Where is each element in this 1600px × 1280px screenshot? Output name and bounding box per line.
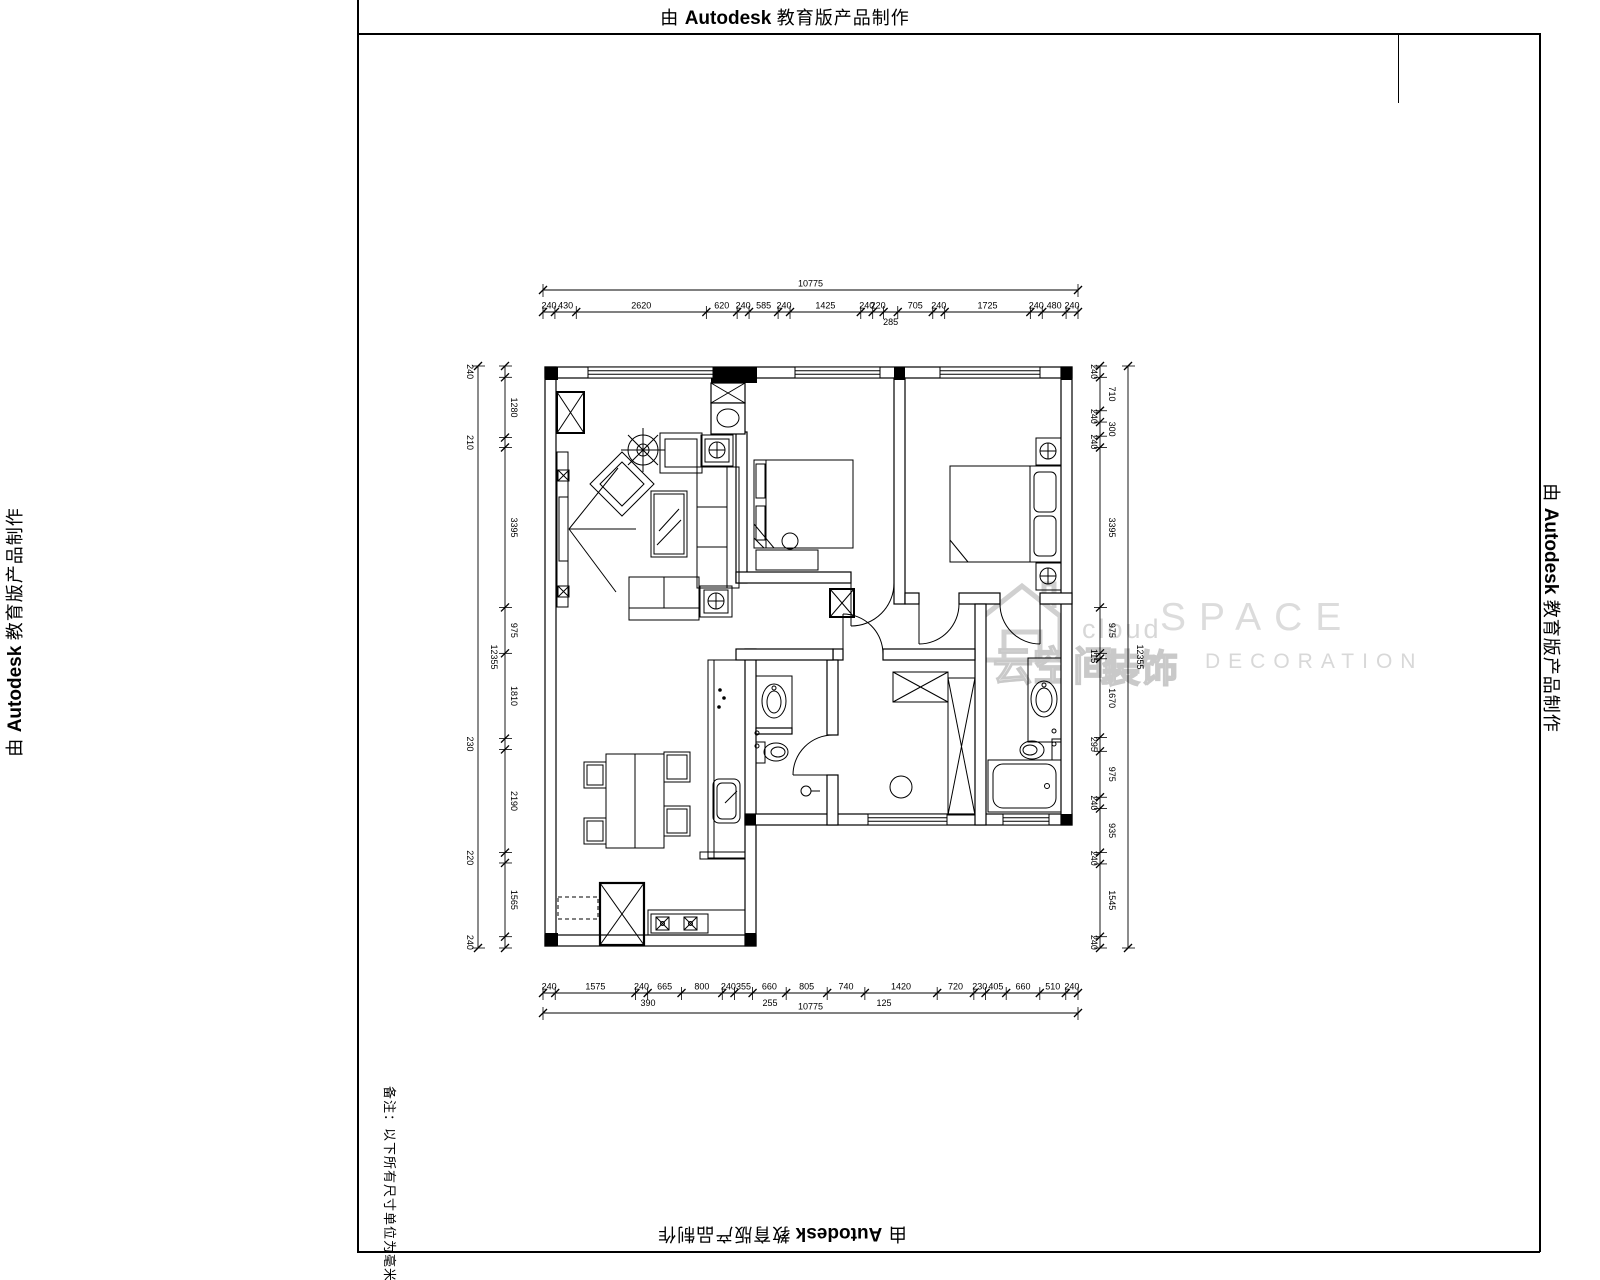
svg-text:220: 220 (465, 850, 475, 865)
svg-text:240: 240 (721, 982, 736, 992)
svg-text:660: 660 (1015, 982, 1030, 992)
svg-text:740: 740 (839, 982, 854, 992)
washbasin-2 (1028, 658, 1061, 742)
coffee-table (651, 491, 687, 557)
svg-text:240: 240 (634, 982, 649, 992)
svg-text:240: 240 (931, 301, 946, 311)
svg-text:240: 240 (736, 301, 751, 311)
svg-text:12355: 12355 (1135, 644, 1145, 669)
tall-wardrobe (948, 678, 975, 815)
svg-text:585: 585 (756, 301, 771, 311)
svg-text:1280: 1280 (509, 397, 519, 417)
svg-text:240: 240 (542, 982, 557, 992)
single-sofa (660, 433, 702, 473)
svg-text:405: 405 (988, 982, 1003, 992)
svg-text:1575: 1575 (585, 982, 605, 992)
svg-text:1425: 1425 (815, 301, 835, 311)
svg-text:12355: 12355 (489, 644, 499, 669)
wardrobe-box (893, 672, 948, 702)
dimension-chain-top: 2404302620620240585240142524022028570524… (539, 279, 1082, 328)
svg-text:1810: 1810 (509, 686, 519, 706)
svg-text:805: 805 (799, 982, 814, 992)
svg-text:975: 975 (1107, 767, 1117, 782)
svg-text:975: 975 (1107, 623, 1117, 638)
dimension-chain-left: 2401280210339597518102302190220156524012… (465, 362, 519, 952)
stool (890, 776, 912, 798)
washbasin-1 (756, 676, 792, 728)
svg-text:1420: 1420 (891, 982, 911, 992)
svg-text:3395: 3395 (509, 517, 519, 537)
svg-text:510: 510 (1045, 982, 1060, 992)
main-sofa (697, 467, 739, 588)
svg-text:480: 480 (1047, 301, 1062, 311)
svg-text:660: 660 (762, 982, 777, 992)
svg-text:1565: 1565 (509, 890, 519, 910)
svg-text:1670: 1670 (1107, 688, 1117, 708)
svg-text:800: 800 (694, 982, 709, 992)
svg-text:125: 125 (876, 998, 891, 1008)
svg-text:620: 620 (714, 301, 729, 311)
svg-text:3395: 3395 (1107, 517, 1117, 537)
svg-text:710: 710 (1107, 387, 1117, 402)
nightstand-top (1036, 438, 1061, 465)
loveseat (629, 577, 699, 620)
nightstand-bottom (1036, 563, 1061, 590)
svg-text:975: 975 (509, 623, 519, 638)
svg-text:240: 240 (777, 301, 792, 311)
appliance-dashed (558, 897, 598, 919)
dimension-chain-bottom: 2401575240665800240355660805740142072023… (539, 982, 1082, 1021)
kitchen-counter (708, 660, 745, 858)
svg-text:1725: 1725 (977, 301, 997, 311)
svg-text:720: 720 (948, 982, 963, 992)
hall-cabinet (830, 589, 854, 617)
svg-text:230: 230 (972, 982, 987, 992)
plant (621, 428, 665, 472)
svg-text:210: 210 (465, 435, 475, 450)
kitchen-sink (713, 779, 740, 823)
bed1 (754, 460, 853, 548)
svg-text:705: 705 (908, 301, 923, 311)
svg-text:10775: 10775 (798, 1002, 823, 1012)
toilet-1 (756, 742, 788, 763)
svg-text:2620: 2620 (631, 301, 651, 311)
armchair (590, 452, 654, 516)
svg-text:240: 240 (1064, 982, 1079, 992)
svg-text:390: 390 (640, 998, 655, 1008)
side-table-lamp-bottom (700, 586, 732, 617)
svg-text:665: 665 (657, 982, 672, 992)
svg-text:295: 295 (1089, 737, 1099, 752)
svg-text:300: 300 (1107, 422, 1117, 437)
dining-chairs (584, 752, 690, 844)
svg-text:285: 285 (883, 317, 898, 327)
svg-text:2190: 2190 (509, 791, 519, 811)
cad-drawing-page: 由 Autodesk 教育版产品制作 由 Autodesk 教育版产品制作 由 … (0, 0, 1600, 1280)
svg-text:1545: 1545 (1107, 890, 1117, 910)
bed2 (950, 466, 1061, 562)
svg-text:240: 240 (541, 301, 556, 311)
tv-cabinet (557, 452, 636, 607)
floor-plan: 2404302620620240585240142524022028570524… (0, 0, 1600, 1280)
stove (651, 914, 708, 933)
svg-text:230: 230 (465, 737, 475, 752)
dimension-chain-right: 2407102403002403395975115167029597524093… (1089, 362, 1145, 952)
ac-unit (557, 392, 584, 433)
svg-text:430: 430 (558, 301, 573, 311)
svg-text:935: 935 (1107, 823, 1117, 838)
svg-text:355: 355 (736, 982, 751, 992)
side-table-lamp-top (701, 435, 733, 466)
svg-text:255: 255 (762, 998, 777, 1008)
svg-text:240: 240 (1029, 301, 1044, 311)
bathtub (988, 760, 1061, 812)
svg-text:10775: 10775 (798, 279, 823, 289)
svg-text:240: 240 (1065, 301, 1080, 311)
floor-drain (801, 786, 820, 796)
dining-table (606, 754, 664, 848)
